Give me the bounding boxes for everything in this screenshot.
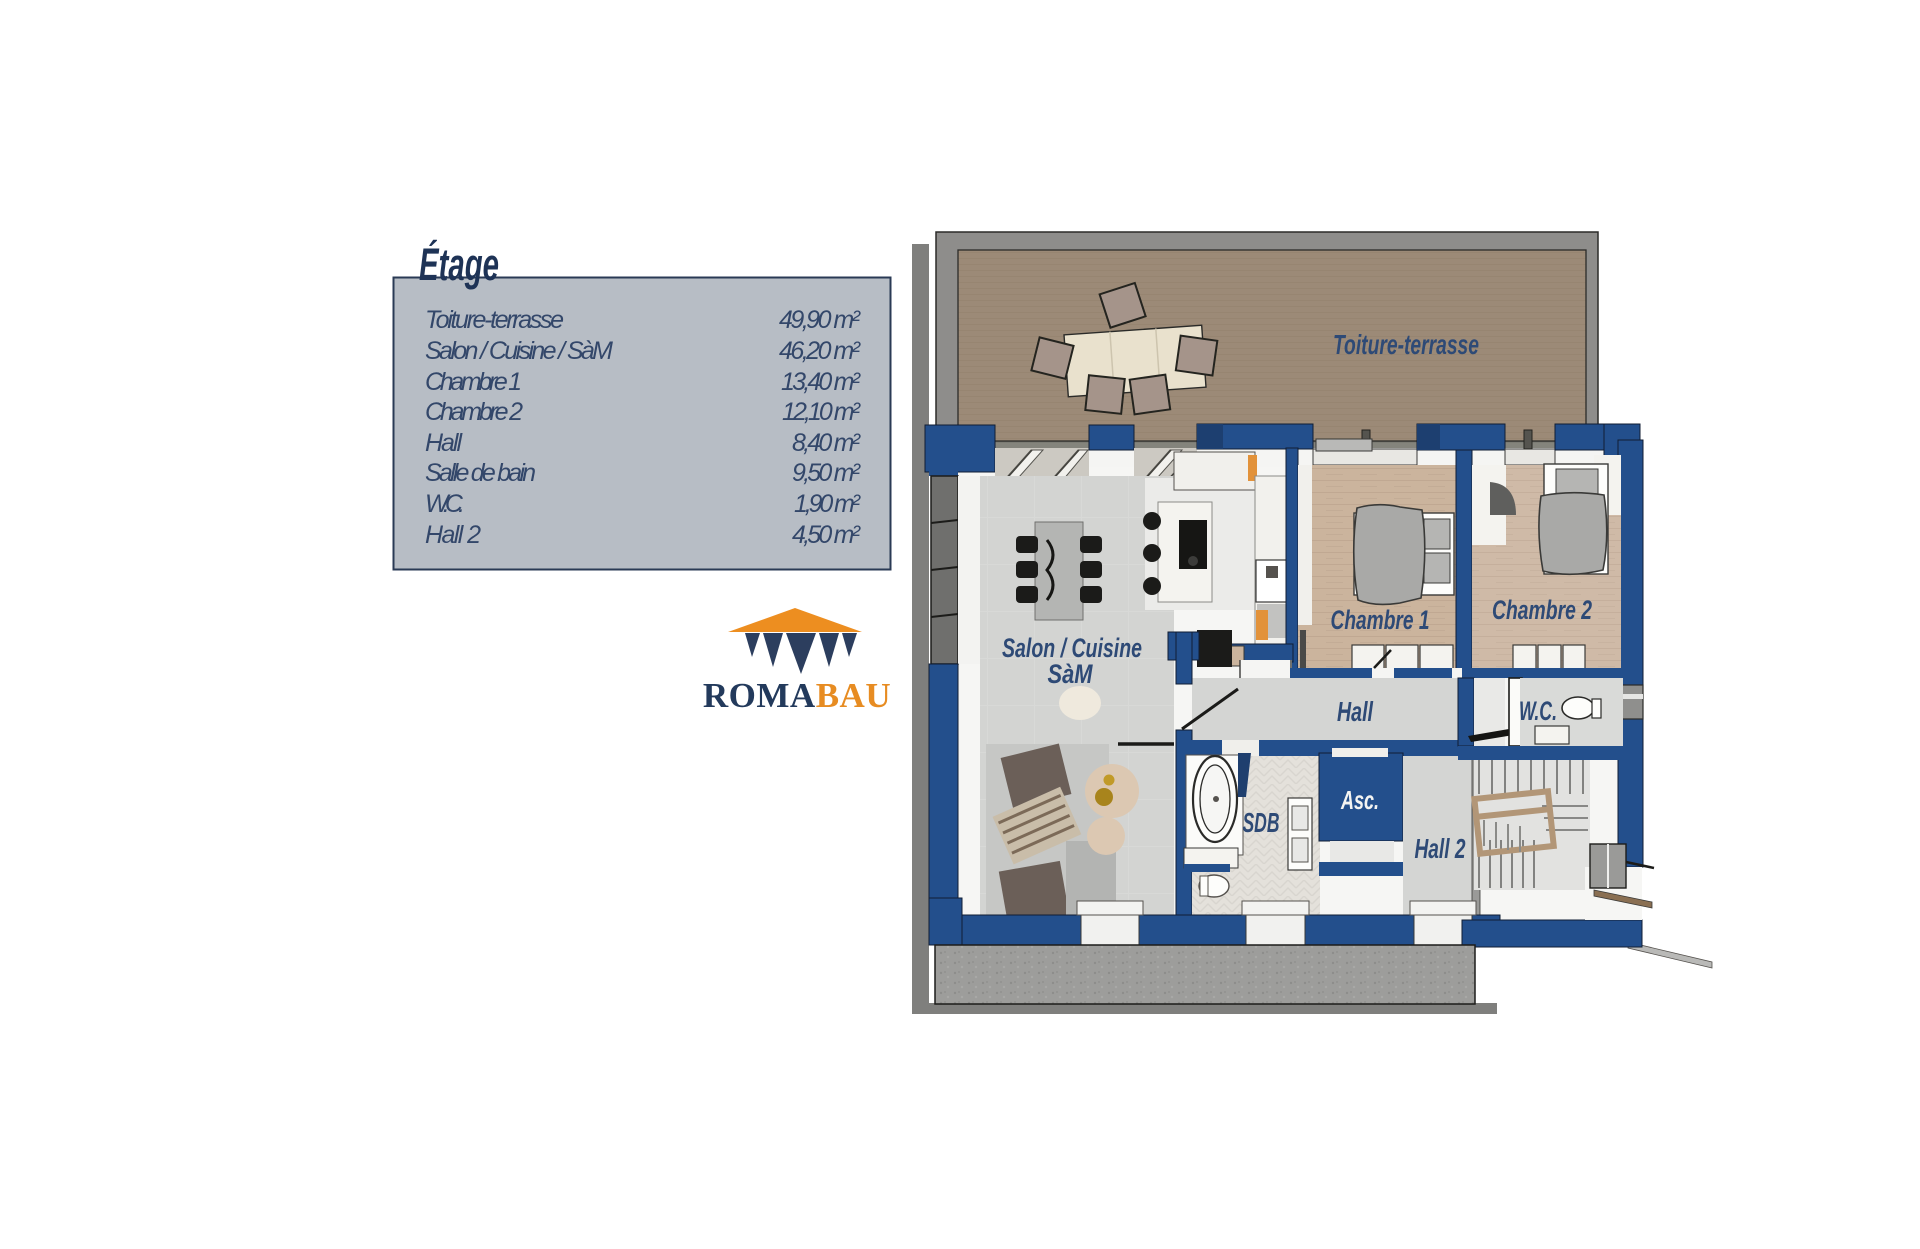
svg-text:ROMABAU: ROMABAU <box>703 676 891 715</box>
svg-text:1,90 m²: 1,90 m² <box>794 490 862 518</box>
svg-text:Salle de bain: Salle de bain <box>425 459 536 487</box>
svg-text:Salon / Cuisine / SàM: Salon / Cuisine / SàM <box>425 337 613 365</box>
svg-text:Toiture-terrasse: Toiture-terrasse <box>1333 329 1479 360</box>
svg-text:Chambre 1: Chambre 1 <box>1331 605 1430 635</box>
svg-text:13,40 m²: 13,40 m² <box>781 368 862 396</box>
svg-text:49,90 m²: 49,90 m² <box>779 306 862 334</box>
svg-text:Hall: Hall <box>425 429 463 457</box>
svg-text:9,50 m²: 9,50 m² <box>792 459 862 487</box>
svg-text:8,40 m²: 8,40 m² <box>792 429 862 457</box>
svg-text:46,20 m²: 46,20 m² <box>779 337 862 365</box>
svg-text:Chambre 2: Chambre 2 <box>425 398 523 426</box>
svg-text:W.C.: W.C. <box>1519 696 1557 726</box>
svg-text:Hall 2: Hall 2 <box>1415 833 1466 864</box>
svg-text:W.C.: W.C. <box>425 490 465 518</box>
svg-text:Hall: Hall <box>1337 696 1374 727</box>
svg-text:SDB: SDB <box>1243 807 1280 838</box>
svg-text:Hall 2: Hall 2 <box>425 521 481 549</box>
svg-text:Toiture-terrasse: Toiture-terrasse <box>425 306 564 334</box>
svg-text:SàM: SàM <box>1048 659 1093 689</box>
svg-text:Asc.: Asc. <box>1340 785 1379 815</box>
svg-text:12,10 m²: 12,10 m² <box>782 398 862 426</box>
svg-text:Chambre 1: Chambre 1 <box>425 368 522 396</box>
svg-text:Chambre 2: Chambre 2 <box>1492 595 1592 625</box>
svg-text:4,50 m²: 4,50 m² <box>792 521 862 549</box>
svg-text:Étage: Étage <box>419 239 499 290</box>
